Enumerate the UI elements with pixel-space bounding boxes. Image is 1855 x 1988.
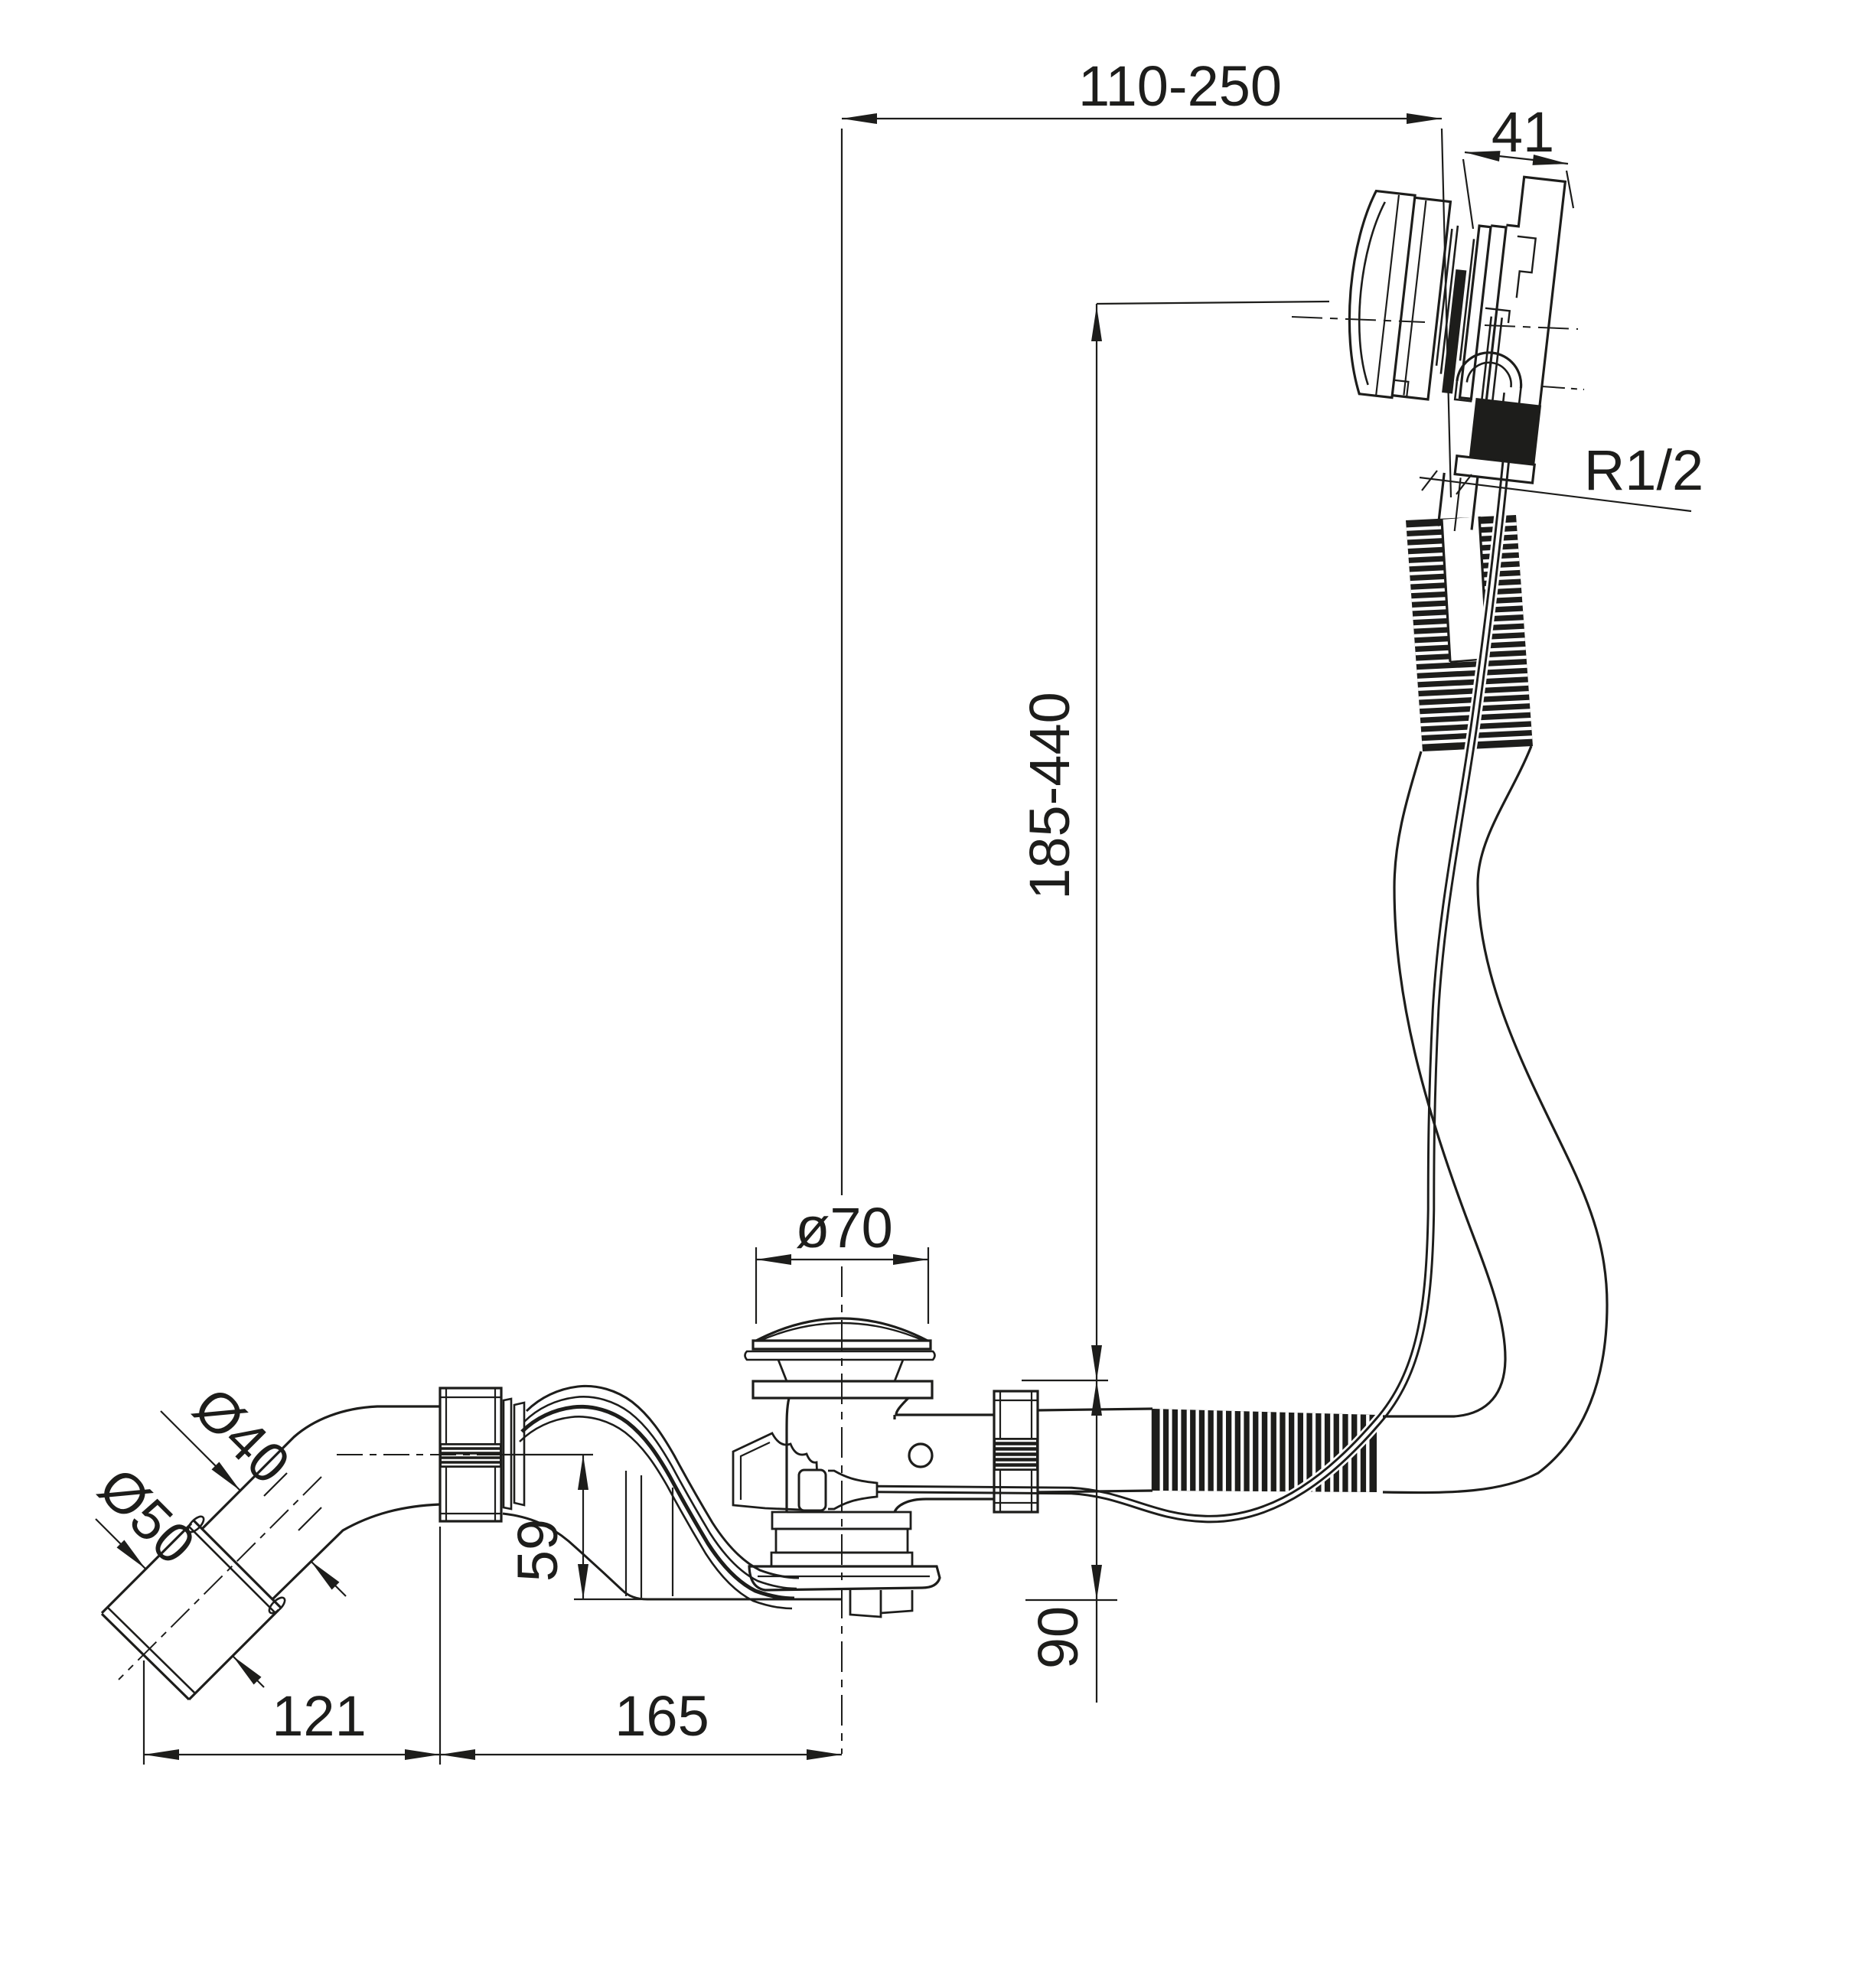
svg-text:90: 90 (1026, 1606, 1090, 1669)
svg-text:121: 121 (272, 1684, 366, 1748)
svg-text:59: 59 (506, 1519, 569, 1582)
svg-text:ø70: ø70 (795, 1196, 893, 1260)
svg-text:185-440: 185-440 (1018, 692, 1081, 900)
svg-text:41: 41 (1491, 100, 1554, 164)
svg-text:110-250: 110-250 (1078, 54, 1282, 118)
svg-text:R1/2: R1/2 (1584, 438, 1703, 502)
svg-text:165: 165 (615, 1684, 709, 1748)
